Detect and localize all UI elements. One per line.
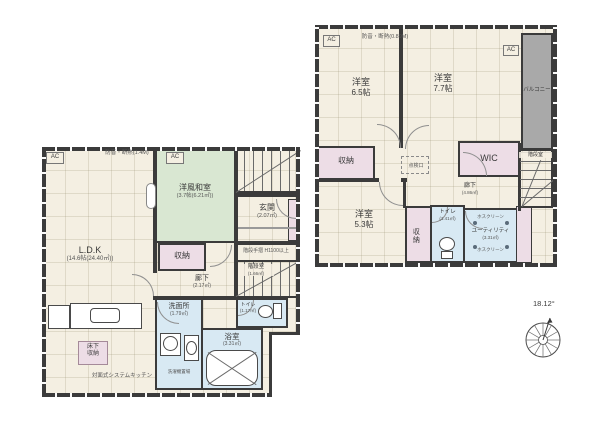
room-label-washitsu: 洋風和室 (3.7帖(6.21㎡)) [160,183,230,199]
room-label-closet-2f-b: 収納 [411,219,419,253]
room-label-a: 洋室 6.5帖 [333,77,389,97]
decor: 5.3帖 [336,220,392,230]
room-label-hallway-2f: 廊下 (4.86㎡) [453,183,487,196]
room-label-stair-1f: 階段室 (1.66㎡) [238,264,274,276]
sub: (3.31㎡) [463,235,518,240]
decor: 階段室 [238,264,274,271]
decor: ユーティリティ [463,228,518,235]
room-label-toilet-2f: トイレ (1.41㎡) [431,209,464,221]
window-note: 防音・断熱(0.89M) [345,34,425,41]
outer-wall-left [315,25,319,267]
floor1-plan: AC 防音・断熱(1.4M) AC L.D.K (14.6帖(24.40㎡)) … [42,147,300,397]
sub: (1.17㎡) [237,308,259,313]
room-label-genkan: 玄関 (2.07㎡) [242,203,292,219]
room-label-utility: ユーティリティ (3.31㎡) [463,228,518,240]
room-closet-strip [516,206,532,263]
outer-wall-right [553,25,557,267]
sub: (3.31㎡) [204,341,260,347]
kitchen-note: 対面式システムキッチン [62,373,182,380]
sub: (3.7帖(6.21㎡)) [160,193,230,200]
toilet-tank-2f [441,251,453,259]
hoscreen-label-top: ホスクリーン [465,214,516,219]
sub: (1.79㎡) [156,311,202,317]
outer-wall-left [42,147,46,397]
decor: 洋室 [336,209,392,220]
room-label-ldk: L.D.K (14.6帖(24.40㎡)) [56,245,124,263]
toilet-tank-1f [273,303,282,319]
wall-segment [234,193,300,197]
staircase-upper [234,149,298,193]
room-label-b: 洋室 7.7帖 [415,73,471,93]
room-label-stair-2f: 階段室 [519,152,552,158]
outer-wall-bottom [315,263,557,267]
vanity-bowl [186,341,197,355]
ceiling-hatch-label: 点検口 [402,163,430,169]
wall-segment [315,178,379,182]
sub: (2.07㎡) [242,213,292,220]
compass-angle: 18.12° [533,299,555,308]
washing-machine-drum [163,336,178,351]
decor: 6.5帖 [333,88,389,98]
sub: (1.41㎡) [431,216,464,221]
room-label-balcony: バルコニー [521,87,553,94]
decor [535,344,541,355]
decor: L.D.K [56,245,124,256]
ac-mark: AC [323,35,340,47]
decor [547,342,558,348]
refrigerator [48,305,70,329]
room-label-closet-1f: 収納 [158,251,206,261]
floorplan-page: { "palette": { "wall": "#3b3b3b", "floor… [0,0,600,424]
decor [528,342,539,348]
outer-wall-top [42,147,300,151]
outer-wall-bottom [42,393,300,397]
hoscreen-dot [505,221,509,225]
floor2-plan: 点検口 AC 防音・断熱(0.89M) AC 洋室 6.5帖 洋室 7.7帖 バ… [315,25,557,267]
ac-mark: AC [46,152,64,164]
exterior-notch [269,332,300,397]
room-label-c: 洋室 5.3帖 [336,209,392,229]
room-label-bath: 浴室 (3.31㎡) [204,332,260,347]
decor [547,332,558,338]
decor: 収納 [78,351,108,358]
decor [547,318,553,323]
room-label-washroom: 洗面所 (1.79㎡) [156,303,202,317]
wall-segment [269,332,272,397]
ceiling-hatch-box: 点検口 [401,156,429,174]
room-label-toilet-1f: トイレ (1.17㎡) [237,302,259,313]
room-label-closet-2f-a: 収納 [317,156,375,166]
handrail-note: 階段手摺 H1100以上 [234,248,298,254]
diag [522,160,542,207]
decor: 7.7帖 [415,84,471,94]
decor [535,325,541,336]
wall-segment [269,332,300,335]
decor-capsule [146,183,156,209]
decor: トイレ [431,209,464,216]
sub: (1.66㎡) [238,271,274,276]
toilet-bowl-1f [258,305,273,318]
wall-segment [403,178,406,208]
decor: 洋室 [333,77,389,88]
decor: 洋室 [415,73,471,84]
wall-segment [234,241,300,245]
room-label-hallway-1f: 廊下 (2.17㎡) [182,275,222,289]
decor: 洋風和室 [160,183,230,193]
decor [545,344,551,355]
wall-segment [153,147,157,273]
decor [528,332,539,338]
decor: 玄関 [242,203,292,213]
room-label-wic: WIC [458,153,520,164]
sub: (14.6帖(24.40㎡)) [56,256,124,263]
label-underfloor-storage: 床下 収納 [78,344,108,358]
window-note: 防音・断熱(1.4M) [88,150,166,157]
sub: (2.17㎡) [182,283,222,289]
compass-icon: 18.12° [511,296,577,372]
ac-mark: AC [166,152,184,164]
outer-wall-top [315,25,557,29]
ac-mark: AC [503,45,519,56]
diag [236,150,301,193]
entrance-step [238,227,298,229]
decor: 浴室 [204,332,260,341]
hoscreen-label-bottom: ホスクリーン [465,247,516,252]
wall-segment [399,25,403,148]
kitchen-sink [90,308,120,323]
sub: (4.86㎡) [453,190,487,195]
toilet-bowl-2f [439,237,455,251]
